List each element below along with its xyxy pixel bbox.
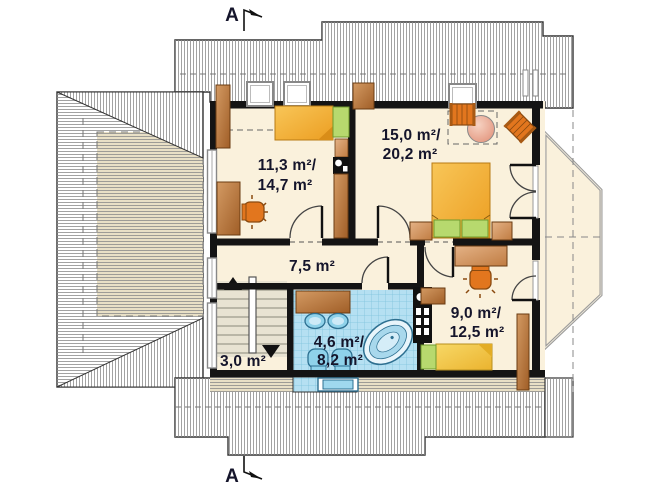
section-marker-top: A: [225, 5, 262, 31]
area-label-bedroom-top-right-1: 15,0 m²/: [381, 127, 441, 144]
area-label-bathroom-2: 8,2 m²: [317, 352, 363, 369]
chimney: [353, 83, 374, 109]
balcony-door-glazing: [533, 261, 538, 300]
floor-plan-page: A A 11,3 m²/ 14,7 m² 15,0 m²/ 20,2 m² 7,…: [0, 0, 660, 487]
roof-vent: [533, 70, 538, 96]
area-label-bathroom-1: 4,6 m²/: [314, 334, 365, 351]
tv: [333, 157, 349, 174]
desk: [455, 246, 507, 266]
roof-window: [247, 82, 273, 106]
area-label-bedroom-top-left-1: 11,3 m²/: [258, 157, 317, 174]
desk: [217, 182, 240, 235]
pillow: [421, 345, 436, 369]
sink: [305, 314, 325, 329]
window: [208, 258, 217, 298]
window: [208, 150, 217, 233]
area-label-bedroom-bottom-right-1: 9,0 m²/: [451, 305, 502, 322]
wardrobe: [334, 174, 348, 238]
sink: [328, 314, 348, 329]
terrace-bay: [545, 110, 601, 392]
area-label-bedroom-top-right-2: 20,2 m²: [383, 146, 438, 163]
floor-plan-drawing: A A 11,3 m²/ 14,7 m² 15,0 m²/ 20,2 m² 7,…: [0, 0, 660, 487]
roof-bottom-band: [175, 378, 573, 455]
section-marker-bottom: A: [225, 456, 262, 487]
armchair: [450, 103, 476, 126]
section-letter: A: [225, 5, 239, 26]
chimney: [517, 314, 529, 390]
roof-window: [284, 82, 310, 106]
shelf: [335, 139, 348, 157]
section-letter: A: [225, 466, 239, 487]
nightstand: [410, 222, 432, 240]
section-arrow-icon: [249, 9, 262, 17]
chimney: [216, 85, 230, 148]
roof-vent: [523, 70, 528, 96]
area-label-staircase: 3,0 m²: [220, 353, 266, 370]
area-label-hallway: 7,5 m²: [289, 258, 335, 275]
garage-roof: [57, 92, 203, 387]
pillow: [434, 220, 460, 237]
bathroom-counter: [296, 291, 350, 313]
nightstand: [492, 222, 512, 240]
window: [208, 303, 217, 368]
area-label-bedroom-bottom-right-2: 12,5 m²: [450, 324, 505, 341]
pillow: [462, 220, 488, 237]
area-label-bedroom-top-left-2: 14,7 m²: [258, 177, 313, 194]
dresser: [421, 288, 445, 304]
nightstand: [333, 107, 349, 137]
